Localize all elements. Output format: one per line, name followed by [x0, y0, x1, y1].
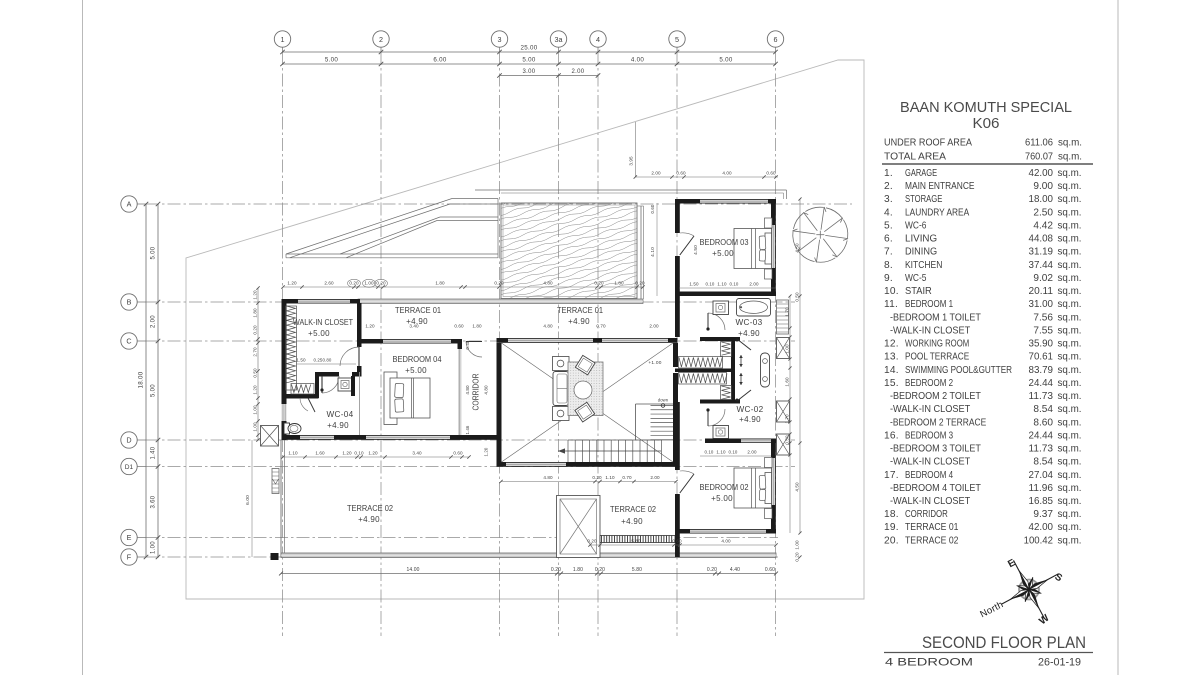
svg-text:0.60: 0.60 — [672, 539, 682, 544]
svg-text:sq.m.: sq.m. — [1058, 483, 1082, 494]
svg-text:4.10: 4.10 — [650, 247, 656, 257]
svg-text:+5.00: +5.00 — [308, 329, 330, 338]
svg-text:4.00: 4.00 — [722, 171, 732, 176]
svg-text:-BEDROOM 2 TOILET: -BEDROOM 2 TOILET — [890, 391, 981, 402]
svg-text:KITCHEN: KITCHEN — [905, 260, 942, 271]
svg-text:0.20: 0.20 — [376, 281, 386, 286]
svg-text:0.70: 0.70 — [596, 324, 606, 329]
svg-text:TERRACE 01: TERRACE 01 — [557, 306, 603, 315]
svg-text:1.10: 1.10 — [716, 450, 726, 455]
svg-text:1.20: 1.20 — [253, 290, 258, 300]
svg-text:11.73: 11.73 — [1029, 391, 1054, 402]
svg-text:3a: 3a — [555, 35, 563, 44]
svg-text:5: 5 — [675, 35, 679, 44]
svg-text:4.80: 4.80 — [543, 324, 553, 329]
svg-text:0.70: 0.70 — [622, 475, 632, 480]
svg-text:8.: 8. — [884, 260, 893, 271]
svg-text:35.90: 35.90 — [1029, 339, 1054, 350]
svg-text:25.00: 25.00 — [521, 45, 538, 52]
svg-text:1.70: 1.70 — [785, 307, 790, 317]
svg-text:6.00: 6.00 — [433, 57, 447, 64]
svg-text:sq.m.: sq.m. — [1058, 391, 1082, 402]
svg-text:6.: 6. — [884, 234, 893, 245]
svg-text:WALK-IN CLOSET: WALK-IN CLOSET — [293, 318, 353, 327]
svg-text:sq.m.: sq.m. — [1058, 152, 1082, 163]
svg-text:4 BEDROOM: 4 BEDROOM — [885, 657, 973, 669]
svg-text:sq.m.: sq.m. — [1058, 444, 1082, 455]
svg-text:4.00: 4.00 — [721, 539, 731, 544]
svg-text:1.80: 1.80 — [435, 281, 445, 286]
svg-text:WC-02: WC-02 — [737, 405, 764, 414]
svg-text:4.40: 4.40 — [730, 567, 740, 573]
svg-text:6.00: 6.00 — [245, 495, 251, 505]
svg-text:WC-5: WC-5 — [905, 273, 927, 284]
svg-text:+4.90: +4.90 — [568, 317, 590, 326]
svg-text:+4.90: +4.90 — [739, 415, 761, 424]
svg-text:sq.m.: sq.m. — [1058, 207, 1082, 218]
svg-text:8.54: 8.54 — [1033, 404, 1053, 415]
svg-text:0.25: 0.25 — [314, 358, 323, 363]
svg-text:1.46: 1.46 — [465, 425, 470, 434]
svg-text:2.00: 2.00 — [649, 324, 659, 329]
svg-text:sq.m.: sq.m. — [1058, 457, 1082, 468]
svg-text:4.80: 4.80 — [465, 385, 470, 395]
svg-text:1.70: 1.70 — [785, 414, 790, 424]
svg-text:1.60: 1.60 — [785, 377, 790, 387]
svg-text:7.56: 7.56 — [1033, 312, 1053, 323]
svg-text:sq.m.: sq.m. — [1058, 138, 1082, 149]
svg-text:7.: 7. — [884, 247, 893, 258]
svg-text:0.10: 0.10 — [705, 450, 714, 455]
svg-text:WC-6: WC-6 — [905, 220, 927, 231]
svg-text:9.37: 9.37 — [1033, 509, 1053, 520]
svg-text:+4.90: +4.90 — [358, 515, 380, 524]
svg-text:20.11: 20.11 — [1029, 286, 1054, 297]
svg-text:sq.m.: sq.m. — [1058, 496, 1082, 507]
svg-text:42.00: 42.00 — [1029, 168, 1054, 179]
svg-text:sq.m.: sq.m. — [1058, 247, 1082, 258]
svg-text:sq.m.: sq.m. — [1058, 181, 1082, 192]
svg-text:sq.m.: sq.m. — [1058, 234, 1082, 245]
svg-text:18.: 18. — [884, 509, 899, 520]
svg-text:-WALK-IN CLOSET: -WALK-IN CLOSET — [890, 457, 970, 468]
svg-text:+4.90: +4.90 — [738, 329, 760, 338]
svg-text:0.60: 0.60 — [765, 567, 775, 573]
svg-text:+1.00: +1.00 — [648, 360, 661, 366]
svg-text:1: 1 — [281, 35, 285, 44]
svg-text:-WALK-IN CLOSET: -WALK-IN CLOSET — [890, 404, 970, 415]
svg-text:-WALK-IN CLOSET: -WALK-IN CLOSET — [890, 496, 970, 507]
svg-text:sq.m.: sq.m. — [1058, 430, 1082, 441]
svg-text:+5.00: +5.00 — [711, 494, 733, 503]
svg-text:5.00: 5.00 — [719, 57, 733, 64]
svg-text:18.00: 18.00 — [1029, 194, 1054, 205]
svg-text:3.: 3. — [884, 194, 893, 205]
svg-text:A: A — [127, 200, 132, 209]
svg-text:1.20: 1.20 — [368, 451, 378, 456]
svg-text:BAAN KOMUTH SPECIAL: BAAN KOMUTH SPECIAL — [900, 99, 1072, 116]
svg-text:70.61: 70.61 — [1029, 352, 1054, 363]
svg-text:4.00: 4.00 — [631, 57, 645, 64]
svg-text:sq.m.: sq.m. — [1058, 522, 1082, 533]
svg-text:5.80: 5.80 — [632, 567, 642, 573]
svg-text:1.60: 1.60 — [315, 451, 325, 456]
svg-text:7.55: 7.55 — [1033, 325, 1053, 336]
svg-text:0.20: 0.20 — [349, 281, 359, 286]
svg-text:sq.m.: sq.m. — [1058, 220, 1082, 231]
svg-text:2.50: 2.50 — [1033, 207, 1053, 218]
svg-text:4.80: 4.80 — [543, 475, 553, 480]
svg-text:1.80: 1.80 — [614, 281, 624, 286]
svg-text:11.96: 11.96 — [1029, 483, 1054, 494]
svg-text:4.: 4. — [884, 207, 893, 218]
svg-text:sq.m.: sq.m. — [1058, 352, 1082, 363]
svg-text:F: F — [127, 553, 132, 562]
svg-text:0.50: 0.50 — [785, 435, 790, 445]
svg-text:TERRACE 02: TERRACE 02 — [905, 535, 959, 546]
svg-text:11.73: 11.73 — [1029, 444, 1054, 455]
svg-text:10.: 10. — [884, 286, 899, 297]
svg-text:WC-04: WC-04 — [327, 410, 354, 419]
svg-text:1.00: 1.00 — [364, 281, 374, 286]
svg-text:MAIN ENTRANCE: MAIN ENTRANCE — [905, 181, 975, 192]
svg-text:4.50: 4.50 — [795, 243, 800, 253]
svg-text:0.10: 0.10 — [729, 450, 738, 455]
svg-text:0.20: 0.20 — [635, 281, 645, 286]
svg-text:sq.m.: sq.m. — [1058, 325, 1082, 336]
svg-text:5.00: 5.00 — [522, 57, 536, 64]
svg-text:2.00: 2.00 — [651, 171, 661, 176]
svg-text:0.20: 0.20 — [594, 281, 604, 286]
svg-text:100.42: 100.42 — [1024, 535, 1054, 546]
svg-text:TERRACE 02: TERRACE 02 — [347, 504, 393, 513]
svg-text:1.80: 1.80 — [472, 324, 482, 329]
svg-text:0.20: 0.20 — [707, 567, 717, 573]
svg-text:1.20: 1.20 — [342, 451, 352, 456]
svg-text:2.00: 2.00 — [749, 282, 759, 287]
svg-text:19.: 19. — [884, 522, 899, 533]
svg-text:1.50: 1.50 — [689, 282, 699, 287]
svg-text:WC-03: WC-03 — [736, 318, 763, 327]
svg-text:1.00: 1.00 — [151, 541, 157, 554]
svg-text:-BEDROOM 2 TERRACE: -BEDROOM 2 TERRACE — [890, 417, 986, 428]
svg-text:15.: 15. — [884, 378, 899, 389]
svg-text:9.: 9. — [884, 273, 893, 284]
svg-text:18.00: 18.00 — [138, 371, 145, 388]
svg-text:31.00: 31.00 — [1029, 299, 1054, 310]
svg-text:17.: 17. — [884, 470, 899, 481]
svg-text:0.80: 0.80 — [323, 358, 332, 363]
svg-text:4.80: 4.80 — [543, 281, 553, 286]
svg-text:4: 4 — [596, 35, 600, 44]
svg-text:5.00: 5.00 — [151, 384, 157, 397]
svg-text:sq.m.: sq.m. — [1058, 378, 1082, 389]
svg-text:0.40: 0.40 — [465, 340, 470, 349]
svg-text:BEDROOM 4: BEDROOM 4 — [905, 470, 953, 481]
svg-text:1.20: 1.20 — [287, 281, 297, 286]
svg-text:31.19: 31.19 — [1029, 247, 1054, 258]
svg-text:24.44: 24.44 — [1029, 430, 1054, 441]
svg-text:sq.m.: sq.m. — [1058, 470, 1082, 481]
svg-text:POOL TERRACE: POOL TERRACE — [905, 352, 969, 363]
svg-text:SWIMMING POOL&GUTTER: SWIMMING POOL&GUTTER — [905, 365, 1012, 376]
svg-text:1.10: 1.10 — [288, 451, 298, 456]
svg-text:14.: 14. — [884, 365, 899, 376]
svg-text:sq.m.: sq.m. — [1058, 312, 1082, 323]
svg-text:44.08: 44.08 — [1029, 234, 1054, 245]
svg-text:3.40: 3.40 — [409, 324, 419, 329]
svg-text:4.42: 4.42 — [1033, 220, 1053, 231]
svg-text:3.00: 3.00 — [523, 69, 536, 75]
svg-text:2: 2 — [379, 35, 383, 44]
svg-text:+5.00: +5.00 — [405, 366, 427, 375]
svg-text:+5.00: +5.00 — [712, 249, 734, 258]
svg-text:0.20: 0.20 — [592, 475, 602, 480]
svg-text:sq.m.: sq.m. — [1058, 509, 1082, 520]
svg-text:2.: 2. — [884, 181, 893, 192]
svg-text:WORKING ROOM: WORKING ROOM — [905, 339, 969, 350]
svg-text:5.00: 5.00 — [325, 57, 339, 64]
svg-text:0.20: 0.20 — [795, 552, 800, 562]
svg-text:TERRACE 01: TERRACE 01 — [905, 522, 959, 533]
svg-text:1.40: 1.40 — [151, 446, 157, 459]
svg-text:GARAGE: GARAGE — [905, 168, 937, 179]
svg-text:5.80: 5.80 — [631, 539, 641, 544]
svg-text:760.07: 760.07 — [1025, 152, 1053, 163]
svg-text:BEDROOM 03: BEDROOM 03 — [700, 238, 749, 247]
svg-text:4.50: 4.50 — [693, 245, 699, 255]
svg-text:sq.m.: sq.m. — [1058, 273, 1082, 284]
svg-text:1.10: 1.10 — [717, 282, 727, 287]
svg-text:LIVING: LIVING — [905, 234, 937, 245]
svg-text:K06: K06 — [973, 115, 1000, 132]
svg-text:2.00: 2.00 — [572, 69, 585, 75]
svg-text:12.: 12. — [884, 339, 899, 350]
svg-text:13.: 13. — [884, 352, 899, 363]
svg-text:TOTAL AREA: TOTAL AREA — [884, 152, 946, 163]
svg-text:4.50: 4.50 — [795, 482, 800, 492]
svg-text:BEDROOM 04: BEDROOM 04 — [393, 355, 442, 364]
svg-text:C: C — [126, 337, 131, 346]
svg-text:D: D — [126, 436, 131, 445]
svg-text:sq.m.: sq.m. — [1058, 535, 1082, 546]
svg-text:8.54: 8.54 — [1033, 457, 1053, 468]
svg-text:6: 6 — [774, 35, 778, 44]
svg-text:5.00: 5.00 — [151, 246, 157, 259]
svg-text:0.20: 0.20 — [253, 325, 258, 335]
svg-text:0.10: 0.10 — [706, 282, 715, 287]
svg-text:27.04: 27.04 — [1029, 470, 1054, 481]
svg-text:42.00: 42.00 — [1029, 522, 1054, 533]
svg-text:down: down — [658, 398, 669, 403]
svg-text:CORRIDOR: CORRIDOR — [905, 509, 948, 520]
svg-text:sq.m.: sq.m. — [1058, 260, 1082, 271]
svg-text:BEDROOM 02: BEDROOM 02 — [700, 483, 749, 492]
svg-text:BEDROOM 3: BEDROOM 3 — [905, 430, 953, 441]
svg-text:0.10: 0.10 — [730, 282, 739, 287]
svg-text:TERRACE 01: TERRACE 01 — [395, 306, 441, 315]
svg-text:16.85: 16.85 — [1029, 496, 1054, 507]
svg-text:2.00: 2.00 — [151, 315, 157, 328]
svg-text:sq.m.: sq.m. — [1058, 286, 1082, 297]
svg-text:TERRACE 02: TERRACE 02 — [610, 505, 656, 514]
svg-text:4.80: 4.80 — [484, 385, 489, 395]
svg-text:0.10: 0.10 — [354, 451, 364, 456]
svg-text:STORAGE: STORAGE — [905, 194, 943, 205]
svg-text:0.60: 0.60 — [766, 171, 776, 176]
svg-text:0.20: 0.20 — [494, 281, 504, 286]
svg-text:B: B — [127, 298, 132, 307]
svg-text:24.44: 24.44 — [1029, 378, 1054, 389]
svg-text:0.60: 0.60 — [676, 171, 686, 176]
svg-text:sq.m.: sq.m. — [1058, 365, 1082, 376]
svg-text:3.95: 3.95 — [629, 156, 634, 166]
svg-text:0.60: 0.60 — [650, 204, 655, 213]
svg-text:8.60: 8.60 — [1033, 417, 1053, 428]
svg-text:-BEDROOM 1 TOILET: -BEDROOM 1 TOILET — [890, 312, 981, 323]
svg-text:D1: D1 — [125, 464, 134, 471]
svg-text:83.79: 83.79 — [1029, 365, 1054, 376]
svg-text:sq.m.: sq.m. — [1058, 417, 1082, 428]
svg-text:+4.90: +4.90 — [621, 517, 643, 526]
svg-text:sq.m.: sq.m. — [1058, 168, 1082, 179]
svg-text:-BEDROOM 4 TOILET: -BEDROOM 4 TOILET — [890, 483, 981, 494]
svg-text:2.60: 2.60 — [324, 281, 334, 286]
svg-text:16.: 16. — [884, 430, 899, 441]
svg-text:0.20: 0.20 — [551, 567, 561, 573]
svg-text:2.00: 2.00 — [650, 475, 660, 480]
svg-text:SECOND FLOOR PLAN: SECOND FLOOR PLAN — [922, 634, 1086, 652]
svg-text:14.00: 14.00 — [406, 567, 419, 573]
svg-text:26-01-19: 26-01-19 — [1038, 657, 1081, 669]
svg-text:611.06: 611.06 — [1025, 138, 1053, 149]
svg-text:sq.m.: sq.m. — [1058, 339, 1082, 350]
svg-text:BEDROOM 1: BEDROOM 1 — [905, 299, 953, 310]
svg-text:BEDROOM 2: BEDROOM 2 — [905, 378, 953, 389]
svg-text:LAUNDRY AREA: LAUNDRY AREA — [905, 207, 969, 218]
svg-text:3: 3 — [498, 35, 502, 44]
svg-text:1.10: 1.10 — [605, 475, 615, 480]
svg-text:sq.m.: sq.m. — [1058, 194, 1082, 205]
svg-text:UNDER ROOF AREA: UNDER ROOF AREA — [884, 138, 972, 149]
svg-text:1.50: 1.50 — [296, 358, 306, 363]
svg-text:1.20: 1.20 — [365, 324, 375, 329]
svg-text:0.20: 0.20 — [595, 567, 605, 573]
svg-text:-BEDROOM 3 TOILET: -BEDROOM 3 TOILET — [890, 444, 981, 455]
svg-text:20.: 20. — [884, 535, 899, 546]
svg-text:1.00: 1.00 — [795, 540, 800, 550]
svg-text:CORRIDOR: CORRIDOR — [472, 373, 481, 410]
svg-text:E: E — [127, 533, 132, 542]
svg-text:1.00: 1.00 — [785, 344, 790, 354]
svg-text:1.20: 1.20 — [484, 447, 489, 456]
svg-text:5.: 5. — [884, 220, 893, 231]
svg-text:0.60: 0.60 — [454, 324, 464, 329]
svg-text:3.40: 3.40 — [412, 451, 422, 456]
svg-text:DINING: DINING — [905, 247, 937, 258]
svg-text:3.60: 3.60 — [151, 495, 157, 508]
svg-text:1.: 1. — [884, 168, 893, 179]
svg-text:1.20: 1.20 — [253, 385, 258, 395]
svg-text:9.00: 9.00 — [1033, 181, 1053, 192]
svg-text:2.70: 2.70 — [253, 347, 258, 357]
svg-text:sq.m.: sq.m. — [1058, 299, 1082, 310]
svg-text:1.00: 1.00 — [253, 422, 258, 432]
svg-text:1.00: 1.00 — [253, 405, 258, 415]
svg-text:0.60: 0.60 — [453, 451, 463, 456]
svg-text:-WALK-IN CLOSET: -WALK-IN CLOSET — [890, 325, 970, 336]
svg-text:9.02: 9.02 — [1033, 273, 1053, 284]
svg-text:1.80: 1.80 — [573, 567, 583, 573]
svg-text:+4.90: +4.90 — [327, 421, 349, 430]
svg-text:STAIR: STAIR — [905, 286, 932, 297]
svg-text:37.44: 37.44 — [1029, 260, 1054, 271]
svg-text:1.80: 1.80 — [253, 308, 258, 318]
svg-text:2.00: 2.00 — [747, 450, 757, 455]
svg-text:0.20: 0.20 — [587, 539, 597, 544]
svg-text:sq.m.: sq.m. — [1058, 404, 1082, 415]
svg-text:11.: 11. — [884, 299, 898, 310]
